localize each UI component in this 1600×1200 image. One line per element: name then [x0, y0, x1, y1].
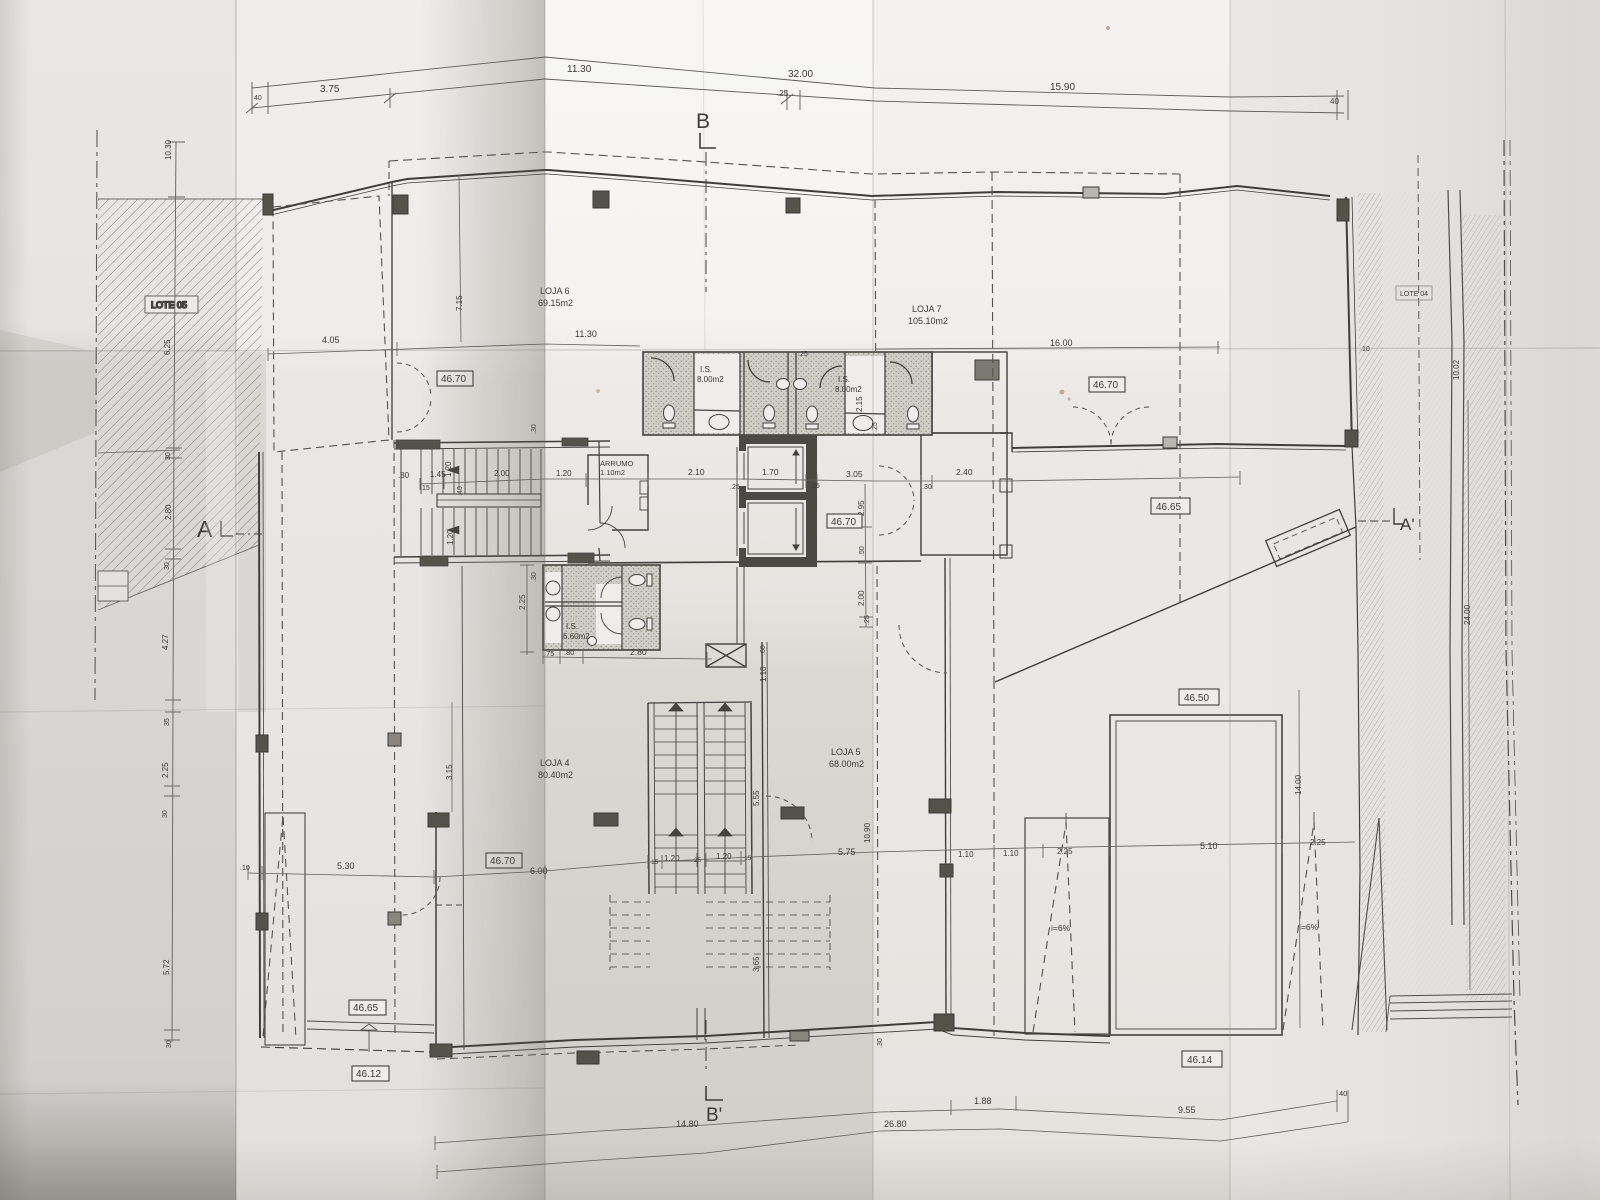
svg-text:15: 15: [744, 855, 752, 862]
svg-text:I.S.: I.S.: [700, 365, 712, 374]
svg-text:1.20: 1.20: [556, 469, 572, 478]
svg-text:10.90: 10.90: [863, 822, 872, 843]
svg-text:LOTE 04: LOTE 04: [1400, 291, 1428, 298]
svg-text:1.10: 1.10: [759, 666, 768, 682]
svg-text:46.70: 46.70: [831, 517, 856, 528]
svg-text:.25: .25: [864, 615, 871, 625]
svg-text:5.55: 5.55: [752, 790, 761, 806]
svg-text:2.80: 2.80: [630, 647, 647, 657]
svg-text:.25: .25: [730, 484, 740, 491]
svg-text:.25: .25: [798, 351, 808, 358]
svg-text:9.55: 9.55: [1178, 1105, 1196, 1115]
svg-text:5.30: 5.30: [337, 861, 355, 871]
svg-text:2.40: 2.40: [956, 467, 973, 477]
svg-text:8.00m2: 8.00m2: [835, 385, 862, 394]
svg-text:.25: .25: [810, 483, 820, 490]
svg-text:.50: .50: [859, 546, 866, 556]
svg-text:2.25: 2.25: [1310, 838, 1326, 847]
svg-text:.10: .10: [1360, 346, 1370, 353]
svg-text:4.05: 4.05: [322, 335, 340, 345]
svg-text:3.65: 3.65: [752, 956, 761, 972]
svg-text:46.14: 46.14: [1187, 1055, 1212, 1066]
svg-text:10.02: 10.02: [1452, 359, 1461, 380]
svg-text:1.70: 1.70: [762, 467, 779, 477]
svg-text:.60: .60: [760, 645, 767, 655]
svg-text:1.88: 1.88: [974, 1096, 992, 1106]
svg-text:46.12: 46.12: [356, 1069, 381, 1080]
svg-text:1.20: 1.20: [664, 854, 680, 863]
svg-text:40: 40: [1339, 1089, 1347, 1098]
svg-text:5.10: 5.10: [1200, 841, 1218, 851]
svg-text:LOJA 7: LOJA 7: [912, 304, 942, 314]
svg-text:1.20: 1.20: [716, 852, 732, 861]
svg-text:40: 40: [254, 95, 262, 102]
svg-text:14.80: 14.80: [676, 1119, 699, 1129]
svg-text:30: 30: [166, 1040, 173, 1048]
svg-text:LOJA 5: LOJA 5: [831, 747, 861, 757]
svg-text:16.00: 16.00: [1050, 338, 1073, 348]
svg-text:25: 25: [694, 857, 702, 864]
svg-text:6.60m2: 6.60m2: [563, 632, 590, 641]
svg-text:30: 30: [162, 810, 169, 818]
svg-text:35: 35: [164, 718, 171, 726]
svg-text:30: 30: [164, 562, 171, 570]
svg-text:105.10m2: 105.10m2: [908, 316, 948, 326]
svg-text:2.80: 2.80: [164, 504, 173, 520]
svg-text:.30: .30: [922, 484, 932, 491]
svg-text:24.00: 24.00: [1463, 604, 1472, 625]
svg-text:B': B': [706, 1105, 722, 1126]
svg-text:i=6%: i=6%: [1299, 922, 1319, 932]
svg-text:B: B: [696, 110, 710, 133]
svg-text:3.75: 3.75: [320, 84, 340, 95]
svg-text:.10: .10: [240, 865, 250, 872]
svg-text:.30: .30: [877, 1038, 884, 1048]
svg-text:2.00: 2.00: [857, 590, 866, 606]
svg-text:46.50: 46.50: [1184, 693, 1209, 704]
svg-text:15.90: 15.90: [1050, 82, 1075, 93]
svg-text:2.15: 2.15: [855, 396, 864, 412]
svg-text:8.00m2: 8.00m2: [697, 375, 724, 384]
svg-text:14.00: 14.00: [1294, 774, 1303, 795]
svg-text:I.S.: I.S.: [566, 622, 578, 631]
svg-text:1.10: 1.10: [958, 850, 974, 859]
svg-text:ARRUMO: ARRUMO: [600, 459, 633, 468]
svg-text:2.25: 2.25: [161, 762, 170, 778]
svg-text:46.65: 46.65: [353, 1003, 378, 1014]
svg-text:3.05: 3.05: [846, 469, 863, 479]
svg-text:15: 15: [651, 859, 659, 866]
svg-text:11.30: 11.30: [575, 329, 597, 339]
svg-text:4.27: 4.27: [161, 634, 170, 650]
svg-text:40: 40: [1330, 97, 1339, 106]
svg-text:10.30: 10.30: [164, 139, 173, 160]
svg-text:i=6%: i=6%: [1051, 923, 1071, 933]
svg-text:6.25: 6.25: [163, 339, 172, 355]
svg-text:68.00m2: 68.00m2: [829, 759, 864, 769]
svg-text:30: 30: [165, 452, 172, 460]
svg-text:.80: .80: [564, 648, 574, 657]
svg-text:11.30: 11.30: [567, 64, 592, 75]
svg-text:I.S.: I.S.: [838, 375, 850, 384]
svg-text:1.10: 1.10: [1003, 849, 1019, 858]
svg-text:5.75: 5.75: [838, 847, 856, 857]
svg-text:.25: .25: [777, 89, 789, 98]
svg-text:5.72: 5.72: [162, 959, 171, 975]
svg-text:46.70: 46.70: [1093, 380, 1118, 391]
svg-text:2.25: 2.25: [1057, 847, 1073, 856]
svg-text:26.80: 26.80: [884, 1119, 907, 1129]
svg-text:1.10m2: 1.10m2: [600, 468, 625, 477]
svg-text:2.10: 2.10: [688, 467, 705, 477]
svg-text:32.00: 32.00: [788, 69, 813, 80]
svg-text:LOTE 05: LOTE 05: [151, 300, 187, 310]
svg-text:.80: .80: [398, 471, 410, 480]
svg-text:46.65: 46.65: [1156, 502, 1181, 513]
